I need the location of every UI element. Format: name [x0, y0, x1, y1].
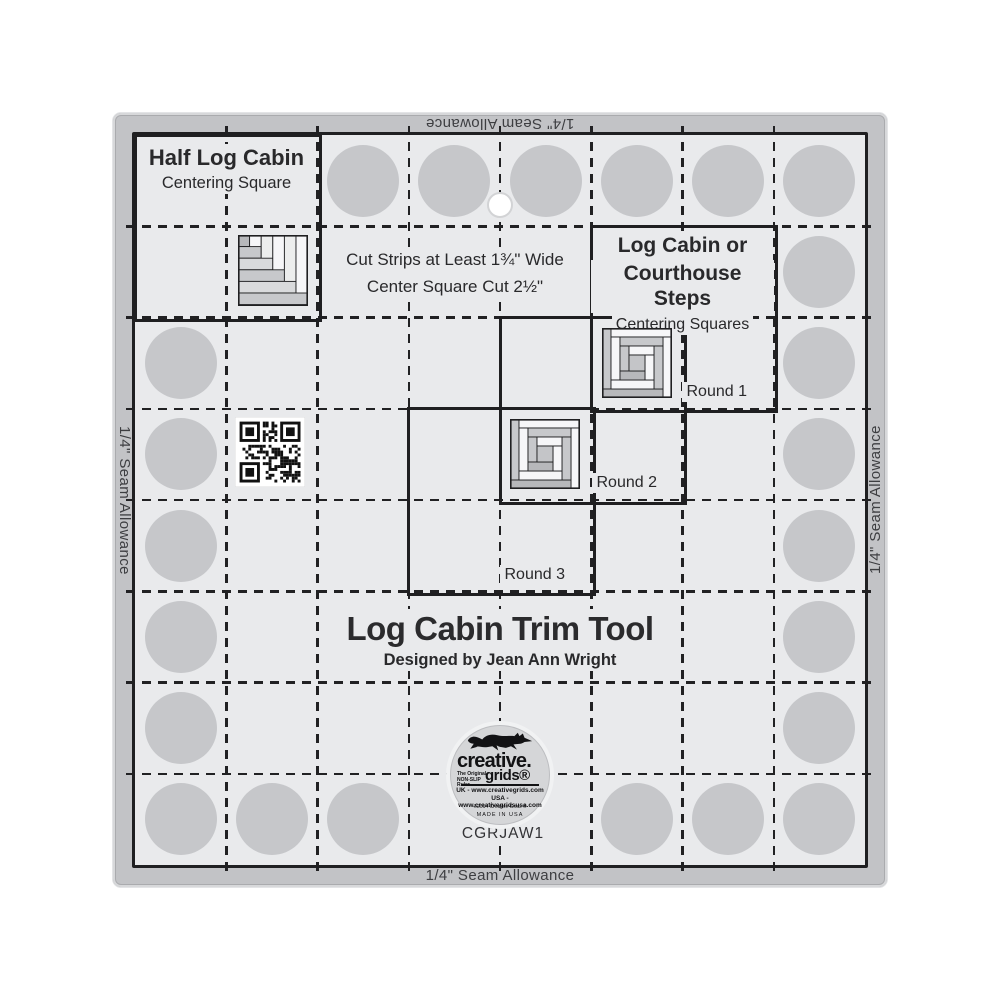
grip-dot: [783, 418, 855, 490]
product-title: Log Cabin Trim Tool: [342, 609, 657, 649]
product-designer: Designed by Jean Ann Wright: [380, 650, 621, 671]
grip-dot: [783, 692, 855, 764]
round1-label: Round 1: [682, 382, 753, 402]
grip-dot: [418, 145, 490, 217]
seam-allowance-label-bottom: 1/4" Seam Allowance: [135, 865, 865, 887]
ruler-grid-area: Half Log Cabin Centering Square Log Cabi…: [135, 135, 865, 865]
grip-dot: [692, 783, 764, 855]
logo-uk-url: UK - www.creativegrids.com: [451, 787, 549, 794]
logo-copyright: ©2014 Creative Grids ®: [451, 804, 549, 810]
product-code: CGRJAW1: [135, 824, 871, 844]
grip-dot: [327, 783, 399, 855]
grip-dot: [145, 692, 217, 764]
grip-dot: [601, 783, 673, 855]
grip-dot: [692, 145, 764, 217]
round3-label: Round 3: [500, 565, 571, 585]
half-log-cabin-title: Half Log Cabin: [145, 144, 308, 172]
lccs-title-line1: Log Cabin or: [614, 232, 752, 260]
instruction-line1: Cut Strips at Least 1¾" Wide: [342, 247, 568, 274]
seam-allowance-label-left: 1/4" Seam Allowance: [113, 135, 135, 865]
grip-dot: [783, 327, 855, 399]
log-cabin-courthouse-label: Log Cabin or Courthouse Steps Centering …: [591, 232, 774, 335]
seam-allowance-label-top: 1/4" Seam Allowance: [135, 113, 865, 135]
grid-line-horizontal: [126, 681, 874, 684]
grip-dot: [236, 783, 308, 855]
hanging-hole: [487, 192, 513, 218]
cutting-instructions: Cut Strips at Least 1¾" Wide Center Squa…: [320, 247, 590, 300]
grip-dot: [145, 327, 217, 399]
creative-grids-logo: creative. grids® The Original NON-SLIP R…: [450, 725, 550, 825]
logo-brand-bottom: grids®: [485, 767, 545, 784]
grip-dot: [510, 145, 582, 217]
grip-dot: [145, 418, 217, 490]
grip-dot: [145, 783, 217, 855]
log-cabin-block-graphic-round2: [510, 419, 580, 494]
instruction-line2: Center Square Cut 2½": [363, 274, 547, 301]
lccs-title-line2: Courthouse Steps: [591, 260, 774, 313]
half-log-cabin-block-graphic: [238, 235, 308, 312]
grip-dot: [783, 783, 855, 855]
quilting-ruler: 1/4" Seam Allowance 1/4" Seam Allowance …: [113, 113, 887, 887]
logo-divider: [461, 784, 539, 786]
qr-code: [235, 417, 305, 487]
product-image: 1/4" Seam Allowance 1/4" Seam Allowance …: [0, 0, 1000, 1000]
log-cabin-block-graphic-round1: [602, 328, 672, 403]
grip-dot: [783, 236, 855, 308]
product-title-block: Log Cabin Trim Tool Designed by Jean Ann…: [135, 609, 865, 671]
grip-dot: [327, 145, 399, 217]
half-log-cabin-label: Half Log Cabin Centering Square: [135, 144, 318, 194]
half-log-cabin-subtitle: Centering Square: [158, 173, 295, 194]
seam-allowance-label-right: 1/4" Seam Allowance: [865, 135, 887, 865]
grip-dot: [783, 145, 855, 217]
round2-label: Round 2: [592, 473, 663, 493]
grip-dot: [145, 510, 217, 582]
grip-dot: [601, 145, 673, 217]
grip-dot: [783, 510, 855, 582]
logo-made-in: MADE IN USA: [451, 812, 549, 818]
